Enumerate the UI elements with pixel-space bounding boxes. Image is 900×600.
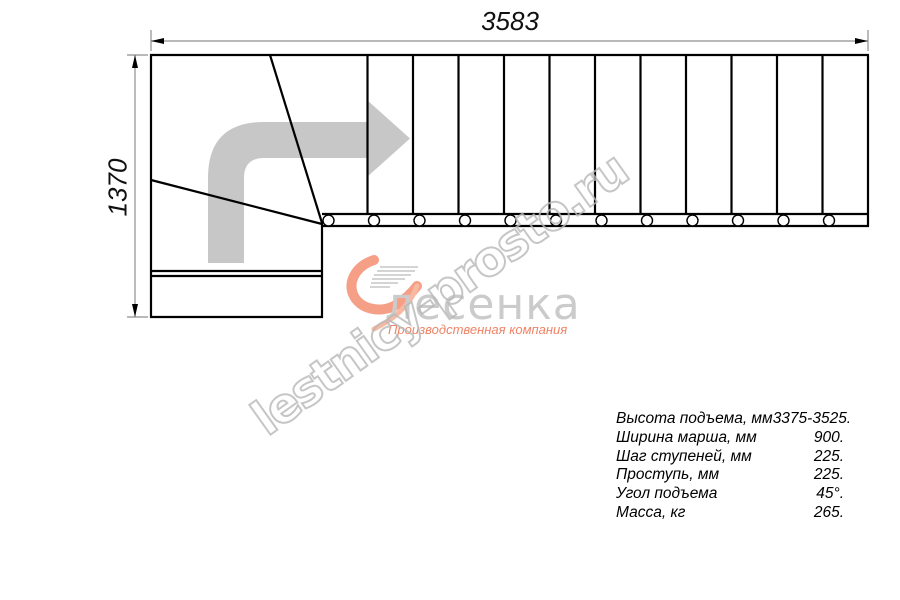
left-dimension-label: 1370 [103, 148, 134, 228]
spec-value: 900. [814, 429, 844, 448]
logo-tagline: Производственная компания [388, 322, 567, 337]
spec-row-angle: Угол подъема 45°. [616, 485, 844, 504]
spec-label: Высота подъема, мм [616, 410, 773, 429]
spec-label: Угол подъема [616, 485, 717, 504]
spec-label: Масса, кг [616, 504, 685, 523]
top-dimension-label: 3583 [468, 6, 552, 37]
spec-label: Ширина марша, мм [616, 429, 757, 448]
baluster-circles [323, 215, 835, 226]
tread-lines [368, 55, 823, 214]
logo-company-name: лесенка [385, 283, 581, 327]
spec-value: 225. [814, 466, 844, 485]
specifications-table: Высота подъема, мм 3375-3525. Ширина мар… [616, 410, 844, 523]
stair-drawing-page: 3583 1370 лесенка Производственная компа… [0, 0, 900, 600]
spec-label: Шаг ступеней, мм [616, 448, 752, 467]
spec-row-width: Ширина марша, мм 900. [616, 429, 844, 448]
spec-row-mass: Масса, кг 265. [616, 504, 844, 523]
spec-row-tread: Проступь, мм 225. [616, 466, 844, 485]
spec-row-step: Шаг ступеней, мм 225. [616, 448, 844, 467]
spec-value: 265. [814, 504, 844, 523]
spec-value: 45°. [816, 485, 844, 504]
spec-row-height: Высота подъема, мм 3375-3525. [616, 410, 844, 429]
spec-label: Проступь, мм [616, 466, 719, 485]
spec-value: 225. [814, 448, 844, 467]
spec-value: 3375-3525. [773, 410, 851, 429]
